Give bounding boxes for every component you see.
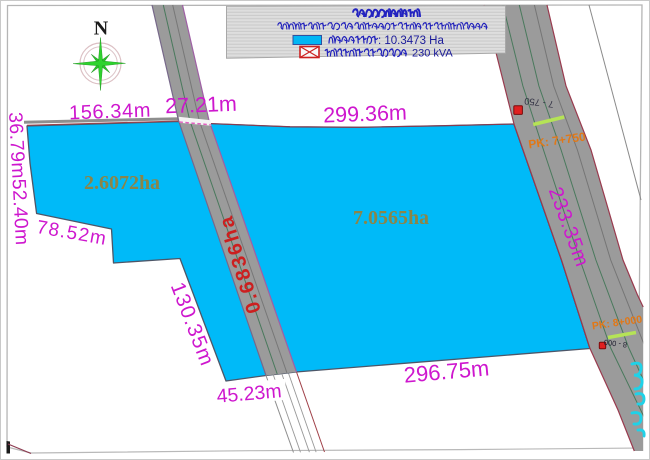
svg-text:156.34m: 156.34m [69,100,152,125]
svg-text:27.21m: 27.21m [165,92,238,118]
svg-text:2.6072ha: 2.6072ha [84,172,160,194]
svg-text:230 kVA: 230 kVA [412,48,453,60]
svg-text:N: N [94,18,109,40]
svg-text:: 10.3473 Ha: : 10.3473 Ha [378,35,444,47]
svg-text:7.0565ha: 7.0565ha [353,207,429,229]
svg-text:299.36m: 299.36m [323,101,407,128]
